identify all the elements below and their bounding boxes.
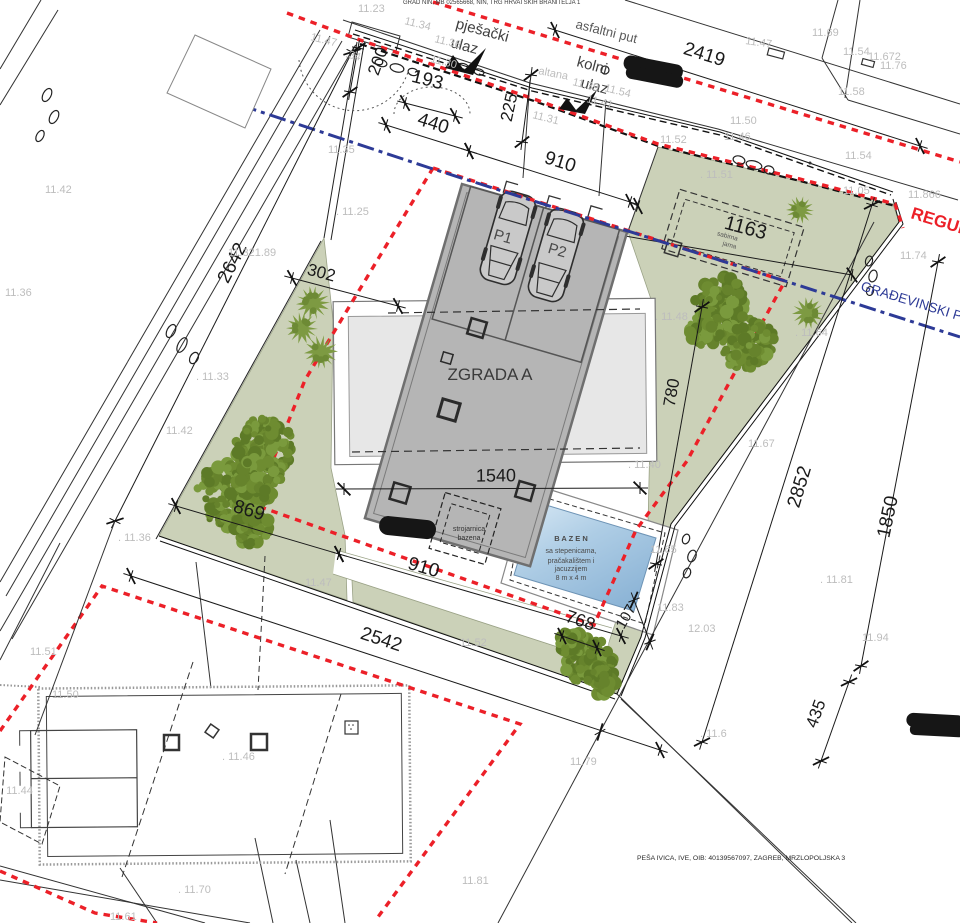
svg-text:PEŠA IVICA, IVE, OIB: 40139567: PEŠA IVICA, IVE, OIB: 40139567097, ZAGRE…: [637, 853, 845, 862]
svg-text:11.65: 11.65: [650, 544, 677, 556]
svg-text:jacuzzijem: jacuzzijem: [554, 566, 588, 573]
svg-text:GRAD NIN, MB 02565668, NIN, TR: GRAD NIN, MB 02565668, NIN, TRG HRVATSKI…: [403, 0, 581, 6]
svg-text:11.42: 11.42: [45, 184, 72, 196]
svg-text:11.46: 11.46: [724, 131, 751, 143]
svg-text:11.52: 11.52: [460, 637, 487, 649]
svg-text:11.36: 11.36: [5, 287, 32, 299]
svg-text:strojarnica: strojarnica: [453, 526, 485, 533]
svg-text:. 11.6: . 11.6: [700, 728, 727, 740]
svg-text:11.321.89: 11.321.89: [228, 247, 276, 259]
svg-text:11.61: 11.61: [110, 911, 137, 923]
svg-text:11.76: 11.76: [880, 60, 907, 72]
svg-text:B A Z E N: B A Z E N: [554, 534, 588, 543]
svg-text:11.47: 11.47: [305, 577, 332, 589]
svg-text:. 11.36: . 11.36: [118, 532, 151, 544]
svg-text:11.42: 11.42: [166, 425, 193, 437]
svg-text:11.54: 11.54: [843, 46, 870, 58]
svg-text:11.52: 11.52: [660, 134, 687, 146]
svg-text:11.866: 11.866: [908, 189, 941, 201]
svg-text:. 11.51: . 11.51: [700, 169, 733, 181]
svg-text:11.79: 11.79: [570, 756, 597, 768]
svg-text:11.67: 11.67: [748, 438, 775, 450]
svg-text:. 11.44: . 11.44: [0, 785, 33, 797]
svg-text:11.23: 11.23: [358, 3, 385, 15]
svg-text:11.58: 11.58: [838, 86, 865, 98]
svg-text:ZGRADA A: ZGRADA A: [447, 365, 533, 384]
svg-text:11.51: 11.51: [30, 646, 57, 658]
svg-text:. 11.64: . 11.64: [795, 327, 828, 339]
svg-text:bazena: bazena: [458, 535, 481, 542]
svg-text:. 11.33: . 11.33: [196, 371, 229, 383]
svg-text:1540: 1540: [476, 465, 516, 485]
svg-text:. 11.48: . 11.48: [655, 311, 688, 323]
svg-text:pračakalištem i: pračakalištem i: [548, 558, 595, 565]
svg-text:8 m x 4 m: 8 m x 4 m: [556, 575, 587, 582]
svg-text:. 11.81: . 11.81: [820, 574, 853, 586]
svg-text:. 11.70: . 11.70: [178, 884, 211, 896]
svg-text:sa stepenicama,: sa stepenicama,: [546, 548, 597, 555]
svg-text:11.05: 11.05: [843, 185, 870, 197]
svg-text:11.81: 11.81: [462, 875, 489, 887]
svg-text:11.54: 11.54: [845, 150, 872, 162]
svg-text:11.94: 11.94: [862, 632, 889, 644]
svg-text:11.74: 11.74: [900, 250, 927, 262]
svg-text:. 11.46: . 11.46: [222, 751, 255, 763]
svg-text:. 11.25: . 11.25: [336, 206, 369, 218]
svg-text:12.03: 12.03: [688, 623, 716, 635]
svg-text:11.69: 11.69: [812, 27, 839, 39]
svg-text:11.50: 11.50: [52, 689, 79, 701]
svg-text:11.50: 11.50: [730, 115, 757, 127]
svg-text:11.83: 11.83: [657, 602, 684, 614]
svg-text:11.35: 11.35: [328, 144, 355, 156]
svg-text:. 11.40: . 11.40: [628, 459, 661, 471]
